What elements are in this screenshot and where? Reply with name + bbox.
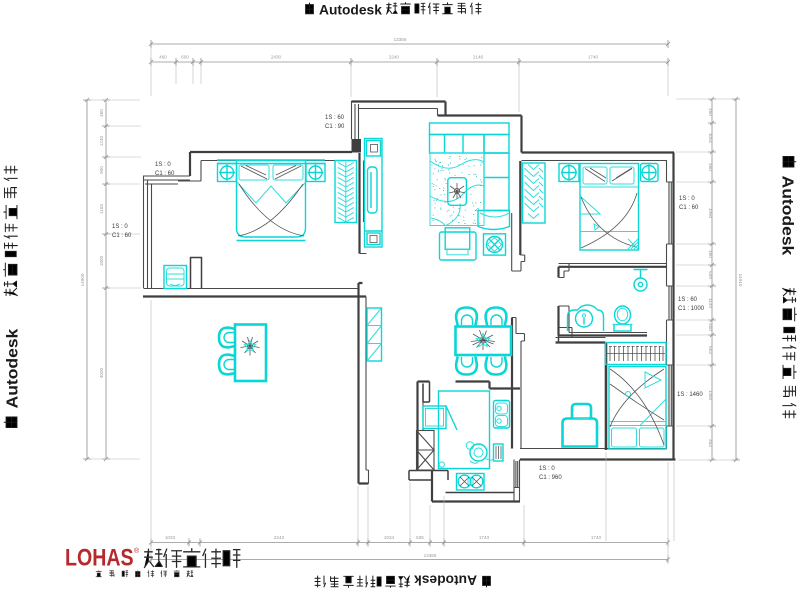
svg-text:460: 460	[708, 108, 713, 116]
svg-text:635: 635	[416, 535, 424, 540]
svg-text:2146: 2146	[473, 55, 484, 60]
svg-text:649: 649	[708, 271, 713, 279]
svg-text:C1 : 960: C1 : 960	[539, 475, 562, 481]
svg-text:1800: 1800	[99, 255, 104, 266]
svg-text:1051: 1051	[708, 133, 713, 144]
svg-text:460: 460	[708, 323, 713, 331]
svg-text:Autodesk: Autodesk	[414, 573, 477, 588]
svg-text:1S : 0: 1S : 0	[112, 224, 128, 230]
svg-text:Autodesk: Autodesk	[3, 328, 21, 409]
svg-text:13366: 13366	[394, 37, 407, 42]
svg-text:®: ®	[134, 547, 140, 555]
svg-text:C1 : 1000: C1 : 1000	[678, 306, 705, 312]
svg-text:C1 : 60: C1 : 60	[155, 171, 175, 177]
svg-text:1743: 1743	[479, 535, 490, 540]
svg-text:1740: 1740	[591, 535, 602, 540]
svg-text:1033: 1033	[165, 535, 176, 540]
svg-text:14900: 14900	[80, 273, 85, 286]
svg-text:1950: 1950	[708, 208, 713, 219]
svg-text:2243: 2243	[274, 535, 285, 540]
svg-text:460: 460	[99, 109, 104, 117]
svg-text:1240: 1240	[99, 135, 104, 146]
svg-text:2240: 2240	[389, 55, 400, 60]
svg-text:C1 : 60: C1 : 60	[679, 205, 699, 211]
svg-text:900: 900	[99, 166, 104, 174]
svg-text:463: 463	[708, 439, 713, 447]
svg-text:Autodesk: Autodesk	[319, 3, 382, 18]
svg-text:Autodesk: Autodesk	[779, 176, 797, 257]
svg-text:2430: 2430	[271, 55, 282, 60]
svg-text:1740: 1740	[588, 55, 599, 60]
svg-text:1034: 1034	[384, 535, 395, 540]
svg-text:LOHAS: LOHAS	[65, 543, 134, 571]
svg-text:653: 653	[708, 346, 713, 354]
svg-text:1153: 1153	[99, 204, 104, 214]
svg-text:460: 460	[708, 163, 713, 171]
svg-text:460: 460	[708, 250, 713, 258]
svg-text:1S : 0: 1S : 0	[539, 466, 555, 472]
svg-text:1S : 60: 1S : 60	[325, 115, 345, 121]
svg-text:13366: 13366	[424, 553, 437, 558]
svg-text:1149: 1149	[708, 298, 713, 308]
svg-text:C1 : 60: C1 : 60	[112, 233, 132, 239]
svg-text:14910: 14910	[738, 274, 743, 287]
svg-text:1S : 60: 1S : 60	[678, 297, 698, 303]
svg-text:1S : 0: 1S : 0	[679, 196, 695, 202]
svg-text:4000: 4000	[99, 367, 104, 378]
svg-text:C1 : 90: C1 : 90	[325, 124, 345, 130]
svg-text:1460: 1460	[708, 390, 713, 401]
svg-text:1S : 1460: 1S : 1460	[677, 392, 703, 398]
svg-text:1S : 0: 1S : 0	[155, 162, 171, 168]
svg-text:600: 600	[181, 55, 189, 60]
svg-text:460: 460	[159, 55, 167, 60]
